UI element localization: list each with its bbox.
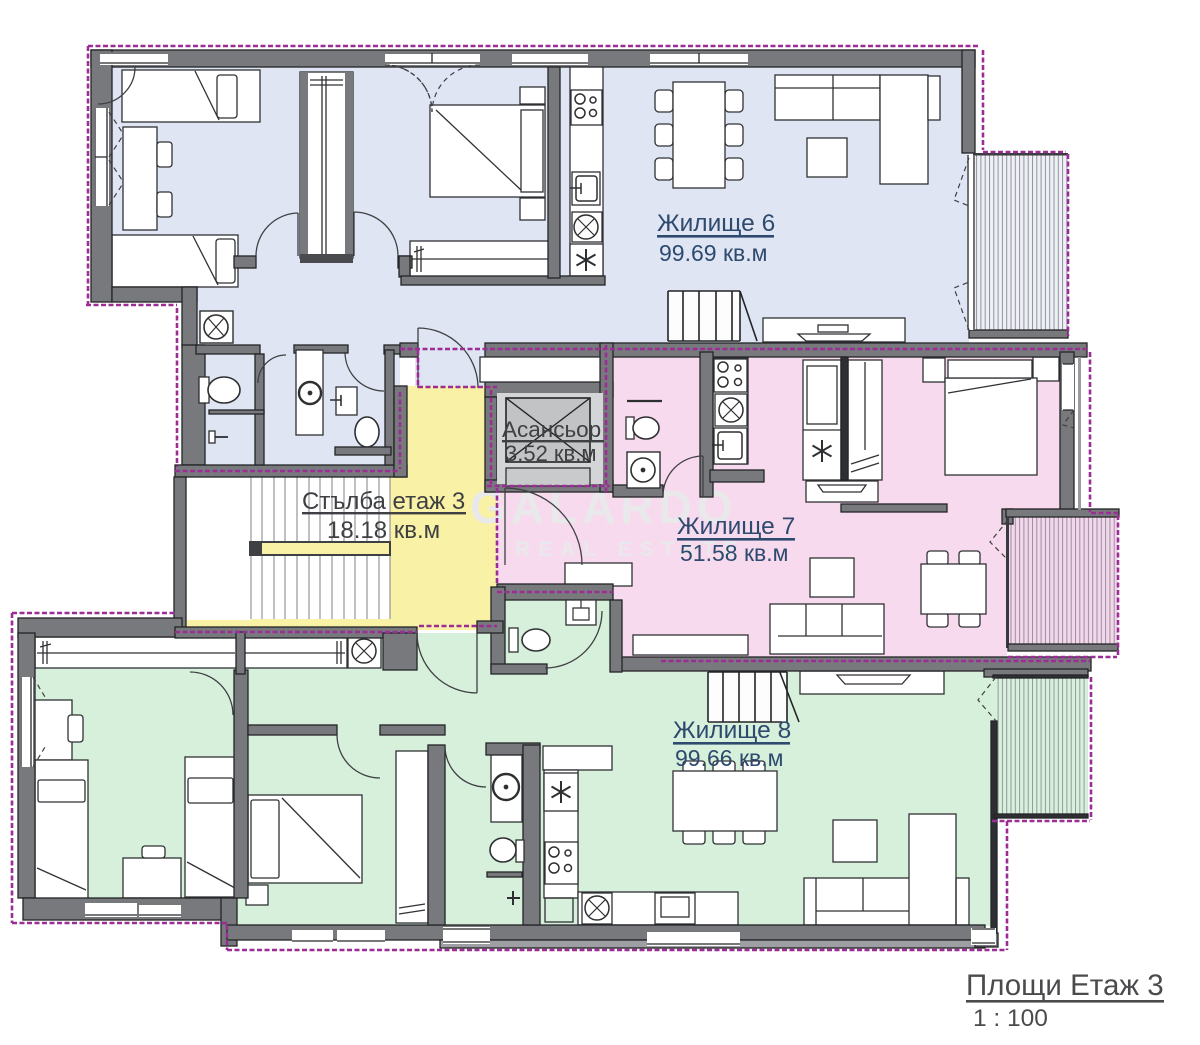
svg-text:Площи Етаж 3: Площи Етаж 3 [966,969,1164,1002]
svg-text:Стълба етаж 3: Стълба етаж 3 [302,488,465,515]
svg-text:99.69 кв.м: 99.69 кв.м [659,240,767,266]
svg-text:3.52 кв.м: 3.52 кв.м [505,441,596,466]
svg-text:99.66 кв.м: 99.66 кв.м [675,745,783,771]
svg-text:Жилище 8: Жилище 8 [673,717,791,744]
svg-text:Жилище 7: Жилище 7 [677,513,795,540]
svg-text:1 : 100: 1 : 100 [973,1005,1048,1032]
svg-text:Жилище 6: Жилище 6 [657,210,775,237]
svg-text:Асансьор: Асансьор [502,417,601,442]
svg-text:18.18 кв.м: 18.18 кв.м [327,517,440,544]
svg-text:51.58 кв.м: 51.58 кв.м [680,540,788,566]
